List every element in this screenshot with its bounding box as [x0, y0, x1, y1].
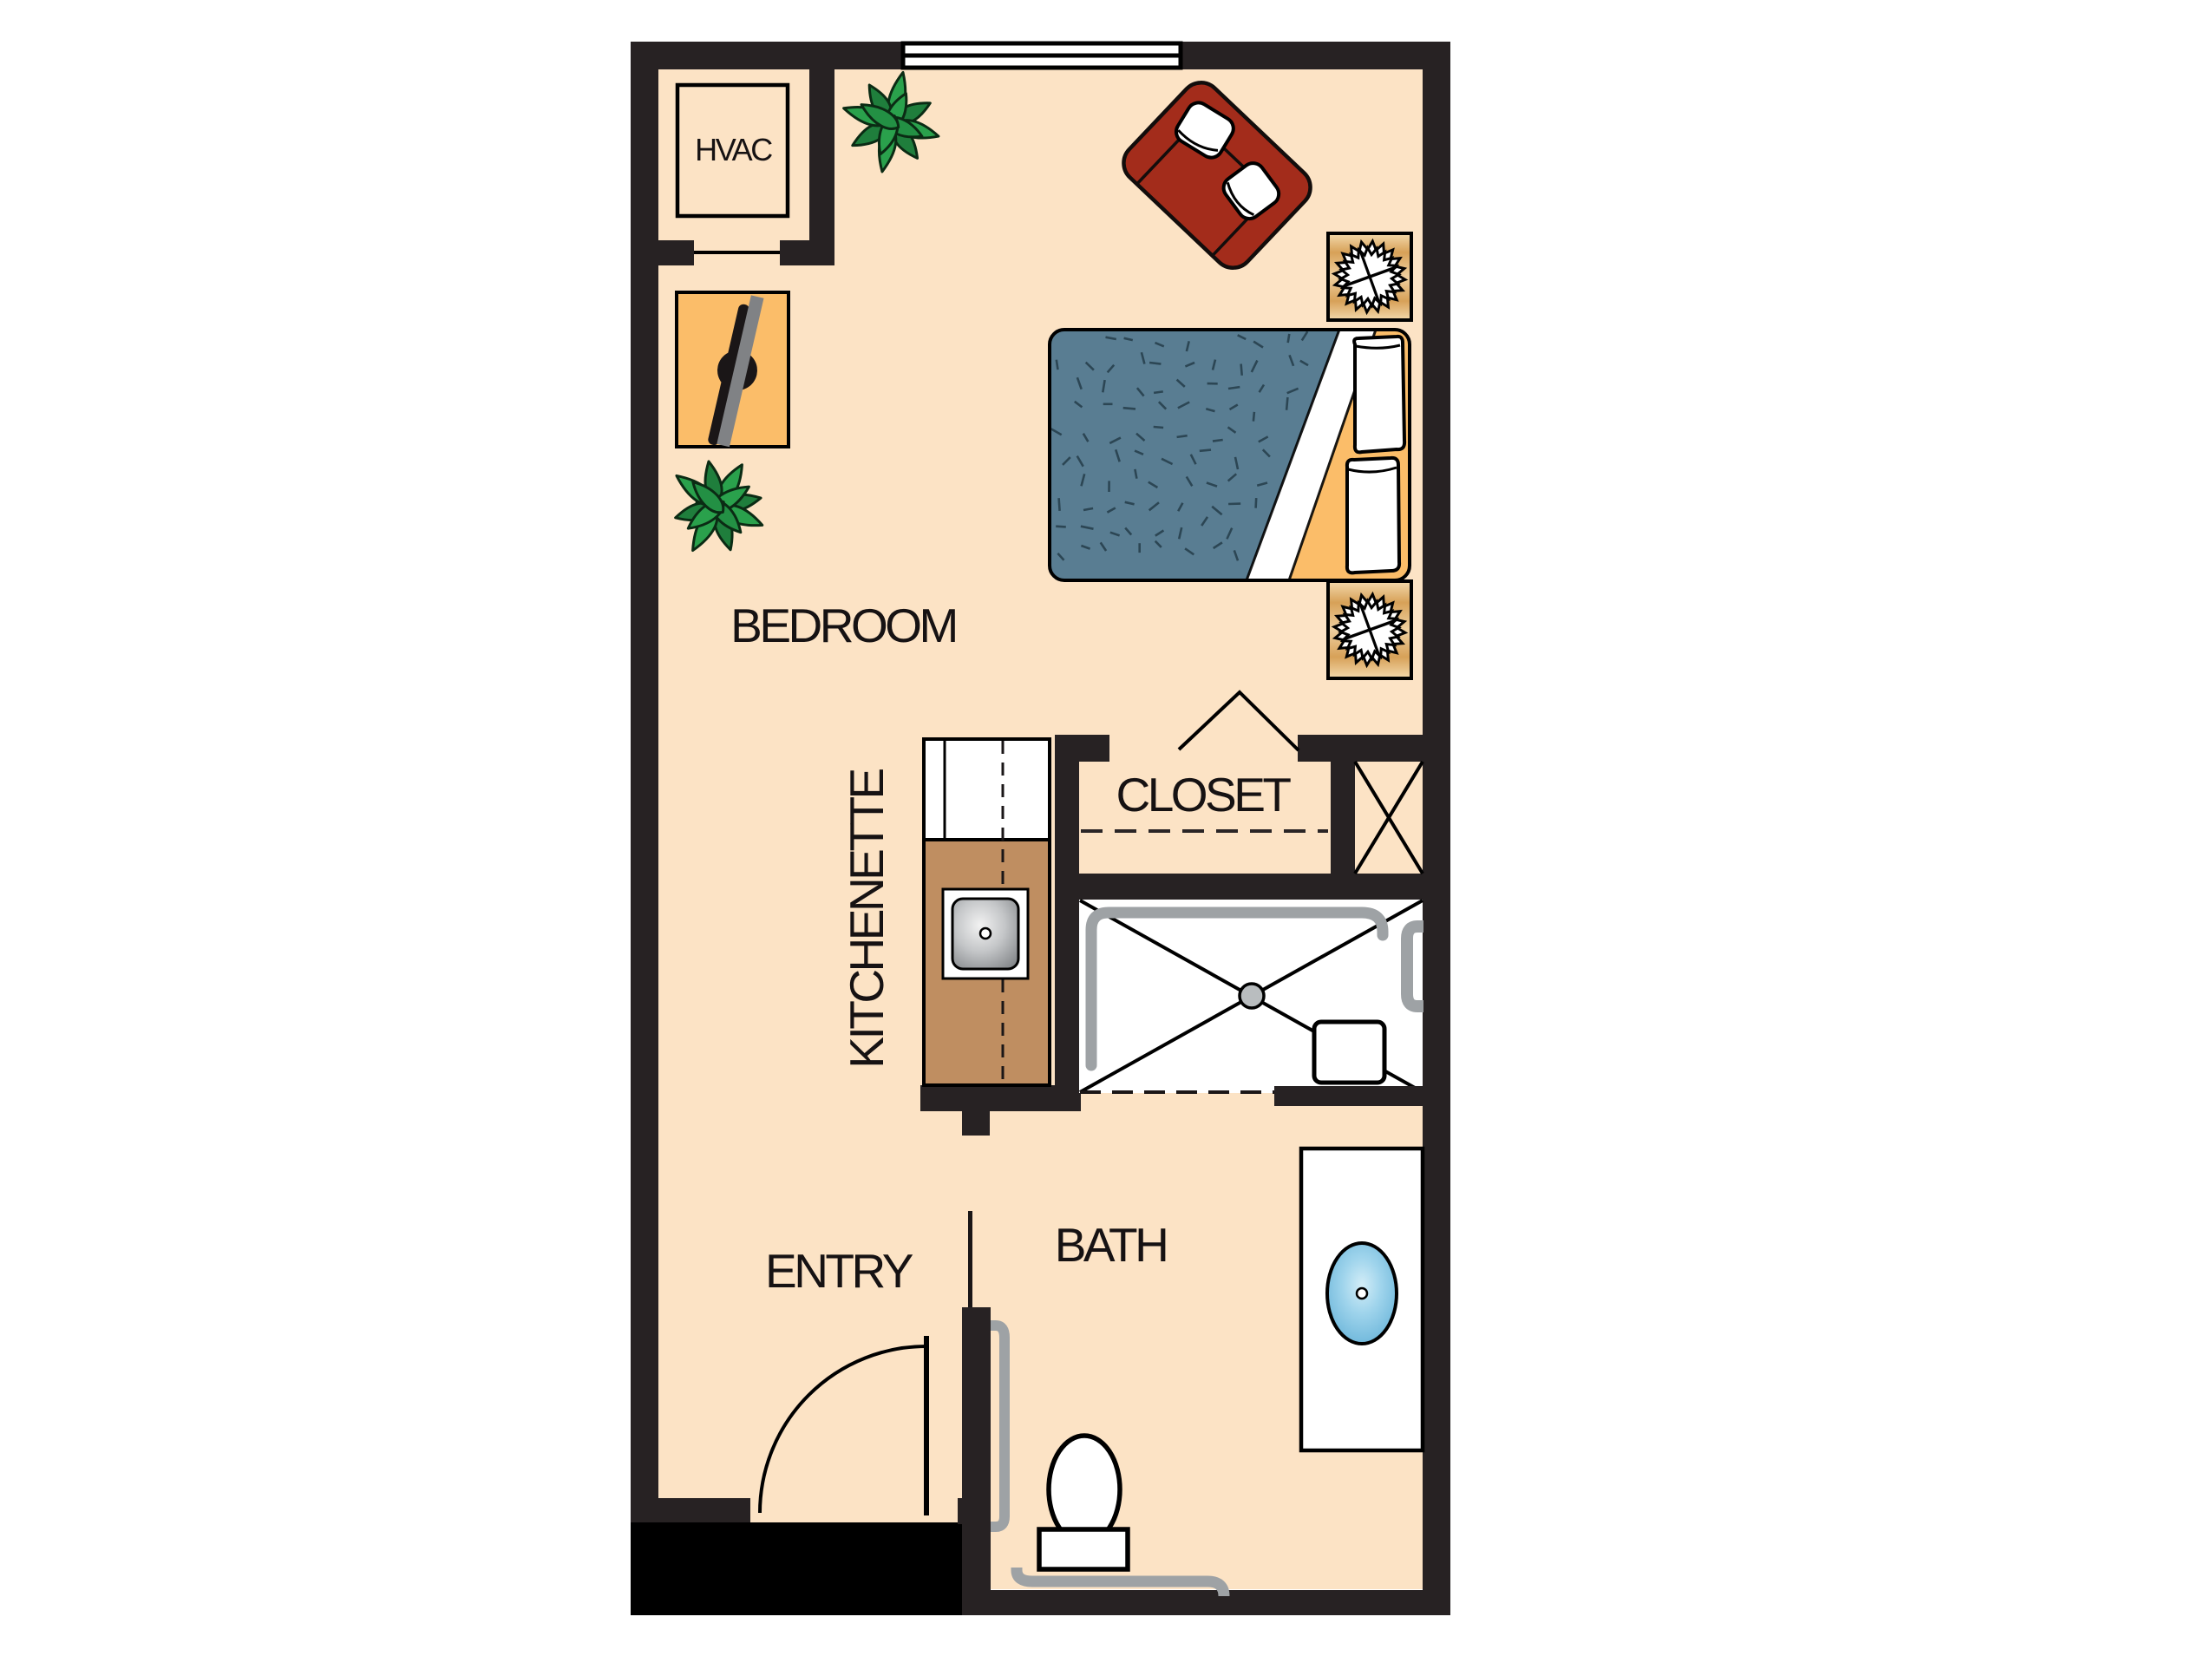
svg-text:HVAC: HVAC [695, 132, 772, 167]
svg-text:CLOSET: CLOSET [1116, 768, 1291, 821]
svg-text:BATH: BATH [1055, 1218, 1167, 1272]
svg-text:KITCHENETTE: KITCHENETTE [840, 769, 893, 1068]
svg-text:BEDROOM: BEDROOM [730, 599, 956, 652]
svg-text:ENTRY: ENTRY [765, 1244, 913, 1298]
